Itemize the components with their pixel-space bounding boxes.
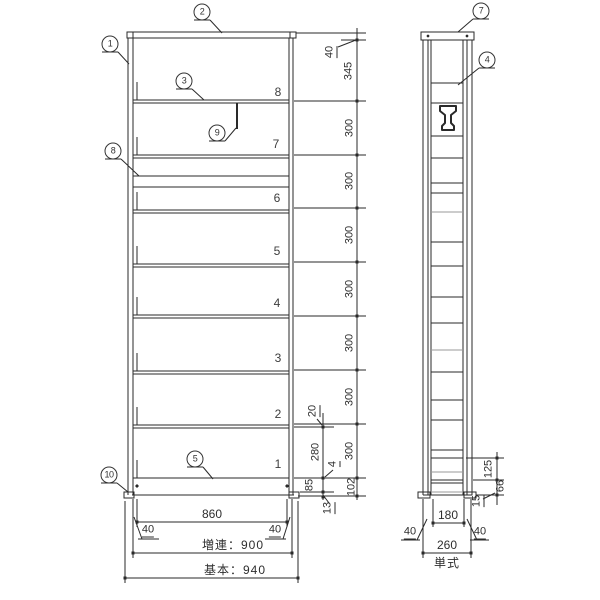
side-top-cap: [421, 32, 474, 40]
shelf-number-label: 6: [274, 192, 281, 204]
side-type-label: 単式: [434, 557, 460, 569]
balloon-4-number: 4: [485, 56, 490, 65]
shelf-number-label: 5: [274, 245, 281, 257]
shelf-number-label: 2: [275, 408, 282, 420]
dim-shelf-pitch: 300: [345, 226, 356, 244]
balloon-9-number: 9: [215, 129, 220, 138]
balloon-10-number: 10: [104, 471, 113, 480]
balloon-part-4: 4: [479, 52, 496, 69]
dim-side-66: 66: [496, 480, 507, 492]
dim-side-inner-width: 180: [438, 509, 458, 521]
front-left-panel: [128, 38, 133, 495]
dim-20: 20: [308, 405, 321, 417]
drawing-geometry: [0, 0, 600, 600]
dim-side-depth: 260: [437, 539, 457, 551]
side-rungs: [431, 83, 463, 492]
balloon-part-7: 7: [473, 3, 490, 20]
balloon-leader-lines: [101, 19, 495, 492]
front-top-cap: [127, 32, 296, 38]
shelf-number-label: 4: [274, 297, 281, 309]
dim-width-extension-label: 増連：900: [202, 539, 264, 551]
balloon-5-number: 5: [193, 455, 198, 464]
dim-front-40-right: 40: [269, 525, 281, 538]
dim-shelf-pitch: 300: [345, 172, 356, 190]
dim-shelf-pitch: 300: [345, 334, 356, 352]
dim-shelf-pitch: 300: [345, 280, 356, 298]
balloon-part-10: 10: [101, 467, 118, 484]
balloon-part-8: 8: [105, 143, 122, 160]
balloon-2-number: 2: [200, 8, 205, 17]
dim-280: 280: [311, 443, 322, 461]
balloon-8-number: 8: [111, 147, 116, 156]
dim-top-segment: 345: [344, 62, 355, 80]
back-brace: [133, 176, 289, 187]
shelf-number-label: 8: [275, 86, 282, 98]
dim-width-basic-label: 基本：940: [204, 564, 266, 576]
dim-shelf-pitch: 300: [345, 442, 356, 460]
dim-cap-height: 40: [325, 46, 338, 58]
dim-side-40-right: 40: [474, 527, 486, 540]
shelf-number-label: 3: [275, 352, 282, 364]
shelf-boards: [133, 100, 289, 428]
balloon-part-5: 5: [187, 451, 204, 468]
dim-shelf-pitch: 300: [345, 388, 356, 406]
balloon-1-number: 1: [108, 40, 113, 49]
side-view: [418, 32, 476, 498]
dim-85: 85: [305, 479, 316, 491]
dim-side-125: 125: [484, 460, 495, 478]
side-posts: [423, 40, 472, 495]
dim-side-40-left: 40: [404, 527, 416, 540]
front-view: [124, 32, 299, 498]
balloon-part-1: 1: [102, 36, 119, 53]
shelf-number-label: 7: [273, 138, 280, 150]
side-bracket: [440, 106, 456, 130]
dim-base-height: 102: [347, 478, 358, 496]
dim-side-15: 15: [472, 495, 485, 507]
front-right-panel: [289, 38, 293, 495]
balloon-3-number: 3: [182, 77, 187, 86]
dimension-lines: [123, 28, 504, 583]
dim-front-inner-width: 860: [202, 508, 222, 520]
balloon-part-9: 9: [209, 125, 226, 142]
shelf-technical-drawing: 1 2 3 9 8 5 10 7 4 8 7 6 5 4 3 2 1 40 34…: [0, 0, 600, 600]
balloon-7-number: 7: [479, 7, 484, 16]
dim-front-40-left: 40: [142, 525, 154, 538]
shelf-number-label: 1: [275, 458, 282, 470]
front-base-plate: [132, 478, 294, 495]
dim-4: 4: [328, 461, 341, 467]
dim-13: 13: [323, 502, 336, 514]
balloon-part-3: 3: [176, 73, 193, 90]
balloon-part-2: 2: [194, 4, 211, 21]
dim-shelf-pitch: 300: [345, 119, 356, 137]
